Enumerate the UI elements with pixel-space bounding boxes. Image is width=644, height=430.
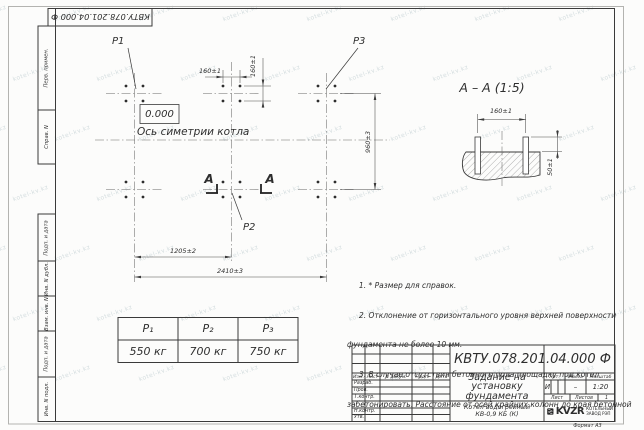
- scale-value: 1:20: [586, 380, 615, 394]
- margin-label: Перв. примен.: [44, 49, 50, 88]
- load-table-value-p2: 700 кг: [178, 340, 238, 363]
- load-table-value-p1: 550 кг: [118, 340, 178, 363]
- margin-label: Подп. и дата: [44, 336, 50, 371]
- load-table-header-p1: P₁: [118, 318, 178, 341]
- dim-row-spacing: 960±3: [364, 131, 372, 153]
- note-line: 1. * Размер для справок.: [347, 281, 617, 291]
- margin-cell-sprav-n: Справ. N: [38, 110, 56, 164]
- company-logo-text: KVZR: [556, 406, 584, 417]
- sig-row-nkontr: Н.контр.: [354, 409, 380, 414]
- kvzr-logo-icon: [547, 405, 554, 418]
- section-letter-right: А: [265, 172, 274, 186]
- note-line: 2. Отклонение от горизонтального уровня …: [347, 311, 617, 321]
- anchor-bolts: [125, 85, 337, 199]
- anchor-bolt-right: [523, 137, 529, 174]
- titleblock-product-name: Котел водогрейный КВ-0,9 КБ (К): [450, 401, 544, 422]
- dim-section-bolt-height: 50±1: [546, 158, 554, 176]
- margin-cell-podp-data-2: Подп. и дата: [38, 331, 56, 377]
- lit-value: И: [544, 380, 551, 394]
- margin-label: Подп. и дата: [44, 220, 50, 255]
- load-label-p3: P3: [353, 36, 365, 47]
- titleblock-designation: КВТУ.078.201.04.000 Ф: [450, 345, 615, 373]
- dim-full-length: 2410±3: [217, 267, 243, 275]
- load-label-p1: P1: [112, 36, 124, 47]
- boiler-axis-label: Ось симетрии котла: [137, 126, 249, 138]
- company-logo-cell: KVZR КОТЕЛЬНЫЙ ЗАВОД РЭП: [547, 403, 613, 420]
- margin-cell-podp-data-1: Подп. и дата: [38, 214, 56, 261]
- section-view-title: А – А (1:5): [459, 80, 524, 95]
- dim-bolt-spacing-y: 160±1: [249, 55, 257, 77]
- margin-label: Взам. инв. N: [44, 297, 50, 331]
- plan-view: [95, 48, 390, 282]
- header-col-list: Лист: [365, 375, 380, 380]
- centerlines: [95, 62, 390, 282]
- load-label-p2: P2: [243, 222, 255, 233]
- anchor-bolt-left: [475, 137, 481, 174]
- sig-row-tkontr: Т.контр.: [354, 395, 380, 400]
- top-designation-text: КВТУ.078.201.04.000 Ф: [51, 12, 150, 22]
- dim-section-bolt-spacing: 160±1: [490, 107, 512, 115]
- sheets-value: 1: [598, 396, 615, 401]
- mass-label: Масса: [565, 375, 586, 380]
- header-col-podp: Подп.: [412, 375, 433, 380]
- dim-half-length: 1205±2: [170, 247, 196, 255]
- sig-row-prov: Пров.: [354, 388, 380, 393]
- doc-title-line: фундамента: [466, 392, 529, 401]
- product-line: Котел водогрейный: [464, 404, 530, 412]
- margin-cell-inv-dubl: Инв. N дубл.: [38, 261, 56, 296]
- load-table-header-p3: P₃: [238, 318, 298, 341]
- sig-row-utv: Утв.: [354, 415, 380, 420]
- company-name: КОТЕЛЬНЫЙ ЗАВОД РЭП: [586, 407, 613, 416]
- margin-cell-vzam-inv: Взам. инв. N: [38, 296, 56, 331]
- margin-label: Инв. N дубл.: [44, 262, 50, 296]
- dimension-lines: [135, 58, 382, 277]
- company-name-line: ЗАВОД РЭП: [586, 412, 613, 417]
- margin-label: Инв. N подл.: [44, 382, 50, 416]
- load-table-value-p3: 750 кг: [238, 340, 298, 363]
- header-col-data: Дата: [433, 375, 450, 380]
- scale-label: Масштаб: [586, 375, 615, 380]
- sheet-label: Лист: [544, 396, 570, 401]
- zero-level-label: 0.000: [140, 105, 179, 124]
- sheets-label: Листов: [570, 396, 598, 401]
- section-letter-left: А: [204, 172, 213, 186]
- lit-label: Лит.: [544, 375, 565, 380]
- margin-cell-inv-podl: Инв. N подл.: [38, 377, 56, 422]
- section-cut-marks: [206, 184, 272, 193]
- margin-cell-perv-primen: Перв. примен.: [38, 26, 56, 110]
- header-col-izm: Изм.: [352, 375, 365, 380]
- format-label: Формат А3: [560, 423, 615, 429]
- titleblock-doc-title: Задание на установку фундамента: [450, 373, 544, 401]
- margin-label: Справ. N: [44, 125, 50, 149]
- drawing-sheet: kotel-kv.kzkotel-kv.kzkotel-kv.kzkotel-k…: [0, 0, 644, 430]
- top-designation-box: КВТУ.078.201.04.000 Ф: [48, 8, 152, 26]
- load-table-header-p2: P₂: [178, 318, 238, 341]
- sig-row-razrab: Разраб.: [354, 381, 380, 386]
- header-col-ndokum: N докум.: [380, 375, 412, 380]
- product-line: КВ-0,9 КБ (К): [475, 411, 518, 419]
- dim-bolt-spacing-x: 160±1: [199, 67, 221, 75]
- mass-value: –: [565, 380, 586, 394]
